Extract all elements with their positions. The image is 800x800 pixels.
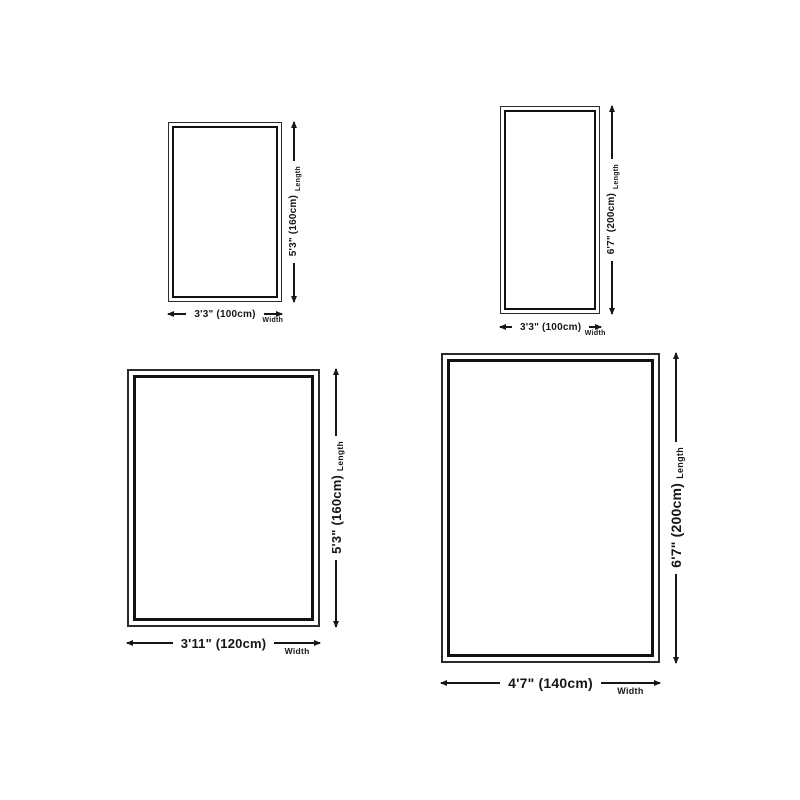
length-value: 6'7" (200cm) xyxy=(669,483,683,568)
width-label: Width xyxy=(585,330,606,337)
width-value: 4'7" (140cm) xyxy=(508,675,593,691)
width-label: Width xyxy=(285,646,310,656)
width-dimension: 3'11" (120cm) Width xyxy=(127,635,320,651)
rug-inner-border xyxy=(133,375,314,621)
width-dimension: 3'3" (100cm) Width xyxy=(168,306,282,322)
length-value: 5'3" (160cm) xyxy=(289,195,299,256)
rug-inner-border xyxy=(504,110,596,310)
length-label: Length xyxy=(295,166,302,191)
rug-outline xyxy=(500,106,600,314)
arrow-up-icon xyxy=(675,353,677,442)
width-label: Width xyxy=(617,686,643,696)
arrow-left-icon xyxy=(441,682,500,684)
arrow-left-icon xyxy=(500,326,512,328)
length-value: 5'3" (160cm) xyxy=(330,475,343,554)
arrow-right-icon: Width xyxy=(274,642,320,644)
length-dimension: Length 6'7" (200cm) xyxy=(668,353,684,663)
arrow-down-icon xyxy=(293,263,295,302)
rug-inner-border xyxy=(172,126,278,298)
rug-outline xyxy=(168,122,282,302)
length-value: 6'7" (200cm) xyxy=(607,193,617,254)
arrow-right-icon: Width xyxy=(601,682,660,684)
arrow-left-icon xyxy=(168,313,186,315)
arrow-up-icon xyxy=(335,369,337,436)
arrow-up-icon xyxy=(293,122,295,161)
width-value: 3'3" (100cm) xyxy=(194,309,255,320)
rug-outline xyxy=(441,353,660,663)
arrow-down-icon xyxy=(675,574,677,663)
width-label: Width xyxy=(262,317,283,324)
length-dimension: Length 5'3" (160cm) xyxy=(286,122,302,302)
rug-size-chart: Length 5'3" (160cm) 3'3" (100cm) Width L… xyxy=(0,0,800,800)
width-dimension: 4'7" (140cm) Width xyxy=(441,675,660,691)
width-value: 3'11" (120cm) xyxy=(181,636,267,651)
rug-inner-border xyxy=(447,359,654,657)
length-dimension: Length 5'3" (160cm) xyxy=(328,369,344,627)
arrow-down-icon xyxy=(335,560,337,627)
arrow-left-icon xyxy=(127,642,173,644)
length-label: Length xyxy=(676,447,685,479)
arrow-right-icon: Width xyxy=(589,326,601,328)
width-value: 3'3" (100cm) xyxy=(520,322,581,333)
length-label: Length xyxy=(613,164,620,189)
length-dimension: Length 6'7" (200cm) xyxy=(604,106,620,314)
rug-outline xyxy=(127,369,320,627)
width-dimension: 3'3" (100cm) Width xyxy=(500,319,600,335)
arrow-up-icon xyxy=(611,106,613,159)
arrow-right-icon: Width xyxy=(264,313,282,315)
length-label: Length xyxy=(336,441,345,471)
arrow-down-icon xyxy=(611,261,613,314)
